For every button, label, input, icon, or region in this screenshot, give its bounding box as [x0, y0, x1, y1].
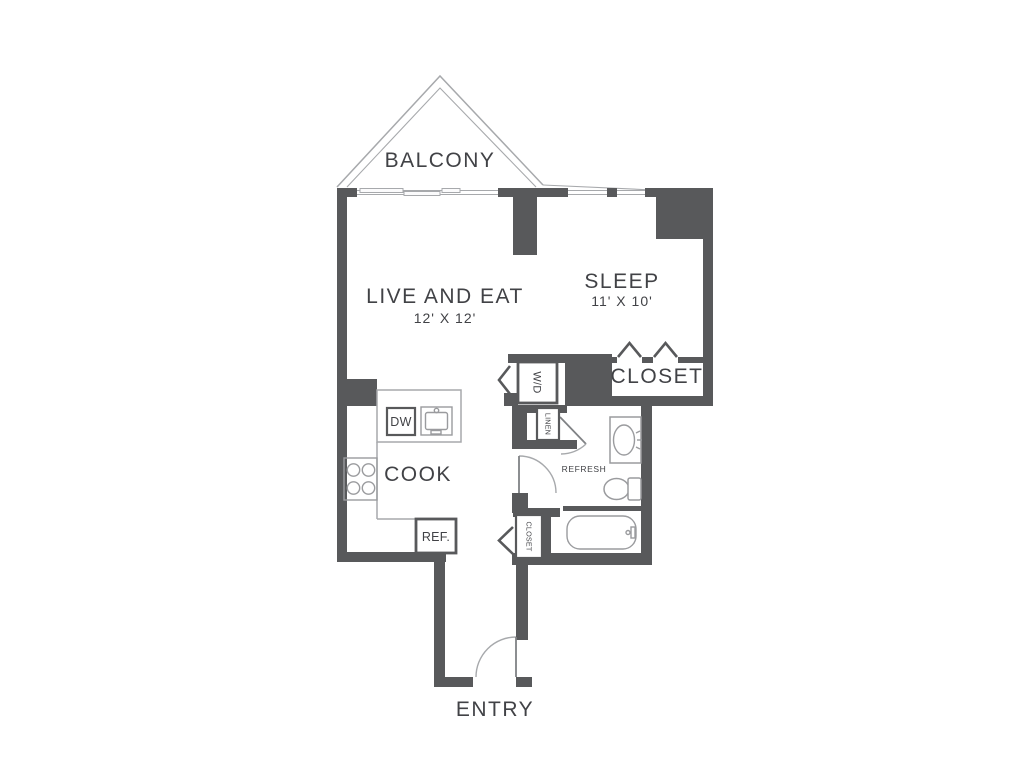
entry-label: ENTRY: [456, 698, 534, 721]
balcony-door-panel: [360, 189, 403, 193]
wd-bifold-door: [499, 366, 510, 394]
refresh-label: REFRESH: [562, 464, 607, 474]
wall-closet-top-3: [678, 357, 703, 363]
wall-entry-left: [434, 562, 445, 687]
bathtub: [567, 516, 636, 549]
balcony-label: BALCONY: [385, 149, 496, 172]
linen-label: LINEN: [543, 413, 552, 435]
sleep-window-2: [617, 191, 645, 195]
wall-top-right: [645, 188, 713, 197]
stove: [344, 458, 377, 500]
balcony-outline-inner: [347, 88, 536, 187]
closet-bifold-door-1: [618, 343, 641, 357]
entry-closet-label: CLOSET: [524, 522, 533, 552]
utility-closets: W/D LINEN CLOSET: [516, 362, 559, 558]
wall-top-middle: [498, 188, 568, 197]
wall-left: [337, 188, 347, 562]
wall-tub-left: [542, 515, 551, 558]
wall-tub-half: [563, 506, 641, 511]
balcony: BALCONY: [337, 76, 653, 190]
wall-top-mullion: [607, 188, 617, 197]
kitchen: DW REF. COOK: [344, 390, 461, 553]
kitchen-sink: [421, 407, 452, 435]
walls: [337, 188, 713, 687]
cook-label: COOK: [384, 463, 452, 486]
wall-linen-bottom: [512, 440, 577, 449]
live-label: LIVE AND EAT: [366, 285, 524, 308]
wall-bath-right: [641, 404, 652, 554]
wall-closet-top-2: [642, 357, 653, 363]
room-labels: LIVE AND EAT 12' X 12' SLEEP 11' X 10' C…: [366, 270, 703, 721]
floor-plan: BALCONY: [0, 0, 1024, 768]
wall-entry-bottom-right: [516, 677, 532, 687]
bathroom: REFRESH: [562, 417, 642, 549]
linen-door-leaf: [560, 417, 586, 444]
wall-sleep-divider: [513, 197, 537, 255]
entry-door-arc: [476, 637, 516, 677]
wall-right: [703, 197, 713, 406]
washer-dryer-label: W/D: [531, 371, 543, 393]
dishwasher-label: DW: [390, 415, 411, 429]
wall-closet-bottom: [600, 396, 713, 406]
wall-wd-stub-bottom: [504, 393, 518, 406]
closet-bifold-door-2: [654, 343, 677, 357]
closet-label: CLOSET: [610, 365, 703, 388]
wall-entry-right: [516, 565, 528, 640]
sleep-dims: 11' X 10': [591, 293, 653, 309]
refrigerator-label: REF.: [422, 530, 450, 544]
toilet: [604, 478, 641, 500]
live-dims: 12' X 12': [414, 310, 477, 326]
wall-entry-bottom-left: [434, 677, 473, 687]
entry-closet-bifold-door: [499, 527, 513, 554]
wall-kitchen-stub: [347, 379, 377, 406]
wall-block-wd-closet: [565, 354, 612, 406]
balcony-door-panel: [442, 189, 460, 193]
sleep-label: SLEEP: [584, 270, 659, 293]
sleep-window-1: [568, 191, 607, 195]
vanity-sink: [610, 417, 642, 463]
bath-door-arc: [519, 456, 556, 493]
balcony-door-panel: [404, 192, 440, 196]
balcony-door-window: [357, 189, 498, 196]
